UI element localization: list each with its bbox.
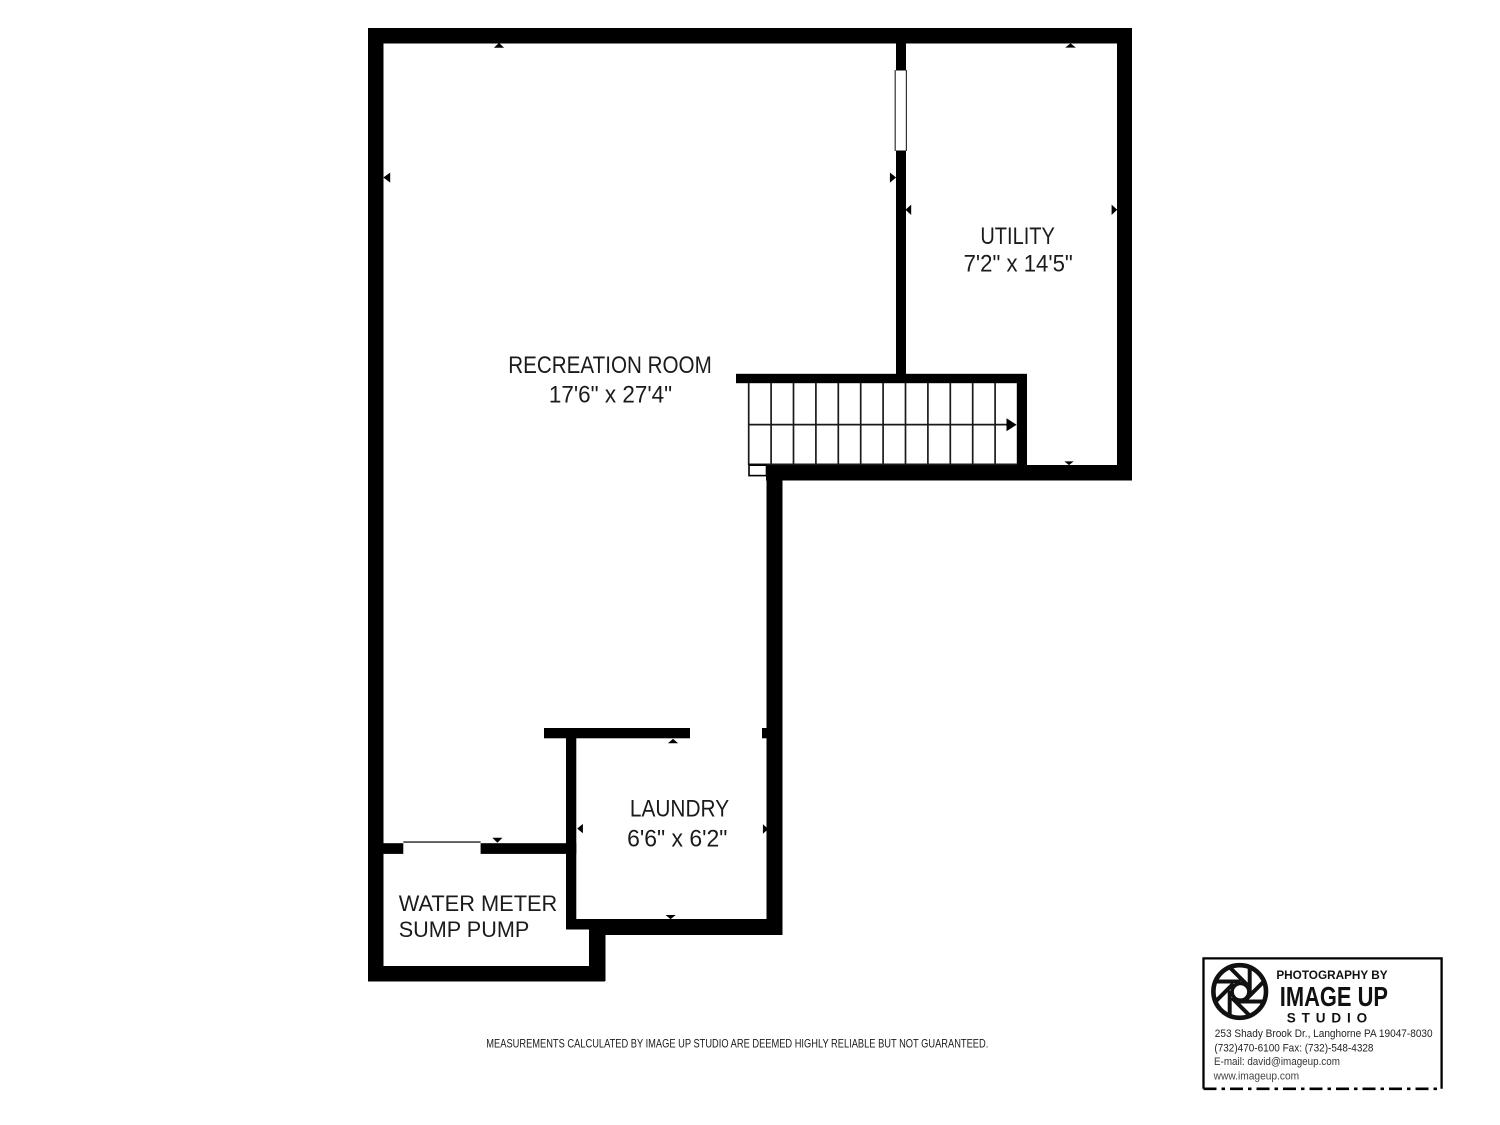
- svg-text:(732)470-6100 Fax: (732)-548-4: (732)470-6100 Fax: (732)-548-4328: [1214, 1042, 1373, 1054]
- svg-text:UTILITY: UTILITY: [980, 223, 1055, 250]
- svg-text:RECREATION ROOM: RECREATION ROOM: [508, 352, 712, 379]
- svg-text:E-mail: david@imageup.com: E-mail: david@imageup.com: [1214, 1056, 1340, 1068]
- svg-text:17'6" x 27'4": 17'6" x 27'4": [549, 382, 672, 409]
- svg-text:MEASUREMENTS CALCULATED BY IMA: MEASUREMENTS CALCULATED BY IMAGE UP STUD…: [486, 1037, 988, 1051]
- svg-text:7'2" x 14'5": 7'2" x 14'5": [964, 251, 1073, 278]
- svg-text:IMAGE UP: IMAGE UP: [1280, 981, 1388, 1012]
- svg-text:LAUNDRY: LAUNDRY: [630, 796, 729, 823]
- svg-text:www.imageup.com: www.imageup.com: [1213, 1070, 1300, 1082]
- svg-text:SUMP PUMP: SUMP PUMP: [399, 917, 530, 942]
- svg-text:WATER METER: WATER METER: [399, 891, 558, 916]
- svg-text:6'6" x 6'2": 6'6" x 6'2": [627, 825, 727, 852]
- svg-text:253 Shady Brook Dr., Langhorne: 253 Shady Brook Dr., Langhorne PA 19047-…: [1215, 1028, 1433, 1040]
